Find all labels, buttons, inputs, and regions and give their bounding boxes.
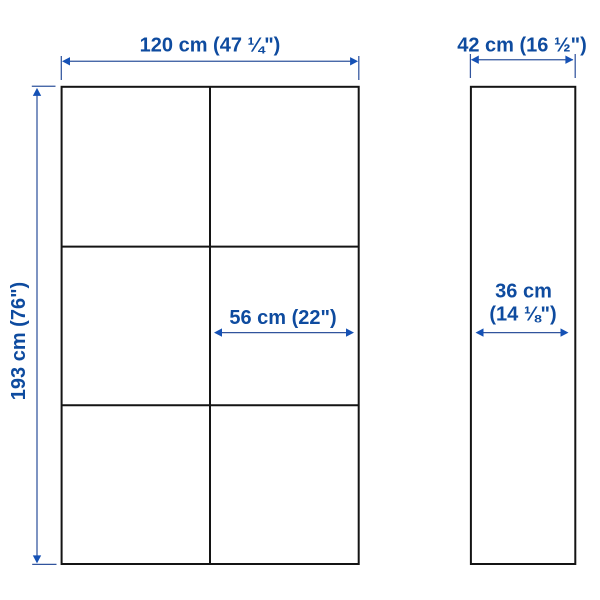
svg-text:42 cm (16 ½"): 42 cm (16 ½") bbox=[457, 35, 587, 57]
svg-text:120 cm (47 ¼"): 120 cm (47 ¼") bbox=[140, 35, 281, 57]
svg-text:56 cm (22"): 56 cm (22") bbox=[229, 307, 336, 329]
svg-text:(14 ⅛"): (14 ⅛") bbox=[489, 304, 556, 326]
svg-text:193 cm (76"): 193 cm (76") bbox=[8, 282, 30, 400]
svg-text:36 cm: 36 cm bbox=[495, 280, 552, 302]
